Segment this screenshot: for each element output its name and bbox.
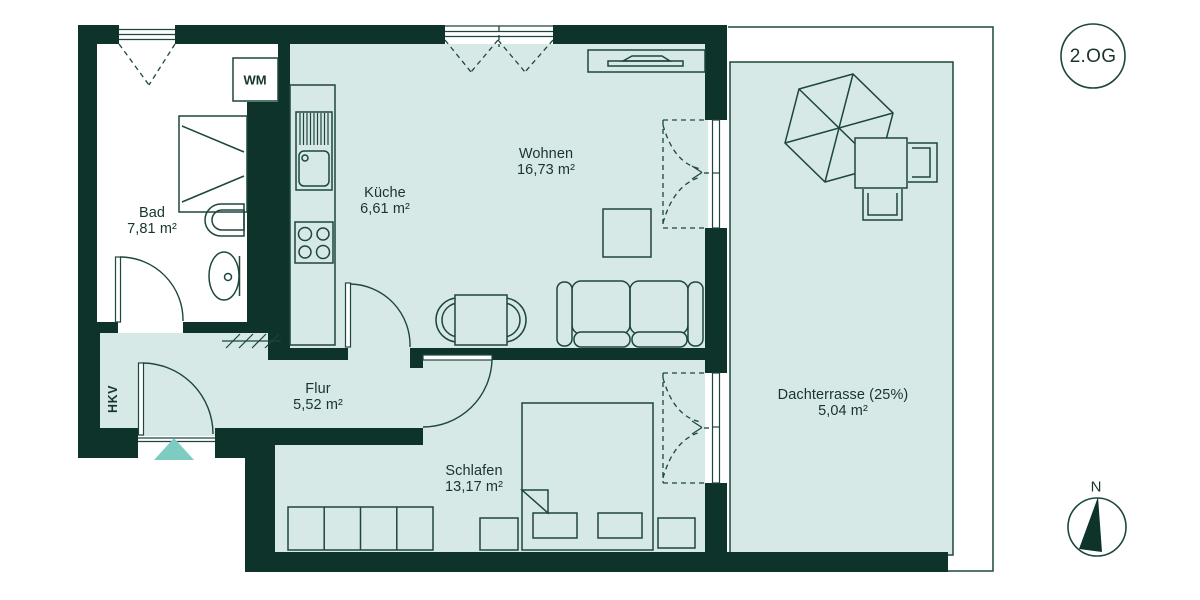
room-name: Flur — [305, 381, 330, 397]
compass-north-label: N — [1091, 479, 1102, 496]
room-label-wohnen: Wohnen 16,73 m² — [517, 146, 575, 178]
room-area: 7,81 m² — [127, 221, 177, 237]
room-area: 16,73 m² — [517, 162, 575, 178]
room-label-flur: Flur 5,52 m² — [293, 381, 343, 413]
room-name: Wohnen — [519, 146, 573, 162]
compass-icon — [1068, 497, 1126, 556]
room-area: 13,17 m² — [445, 479, 503, 495]
floorplan-page: Bad 7,81 m² Küche 6,61 m² Wohnen 16,73 m… — [0, 0, 1200, 600]
room-name: Bad — [139, 205, 165, 221]
room-label-dachterrasse: Dachterrasse (25%) 5,04 m² — [778, 387, 909, 419]
room-name: Küche — [364, 185, 406, 201]
room-name: Schlafen — [445, 463, 502, 479]
washing-machine-label: WM — [243, 73, 266, 88]
room-area: 6,61 m² — [360, 201, 410, 217]
floorplan-canvas — [0, 0, 1200, 600]
room-label-bad: Bad 7,81 m² — [127, 205, 177, 237]
room-name: Dachterrasse (25%) — [778, 387, 909, 403]
floor-badge: 2.OG — [1070, 46, 1117, 68]
utility-shaft-label: HKV — [106, 385, 120, 413]
room-area: 5,04 m² — [778, 403, 909, 419]
room-area: 5,52 m² — [293, 397, 343, 413]
terrace-floor — [730, 62, 953, 555]
room-label-schlafen: Schlafen 13,17 m² — [445, 463, 503, 495]
room-label-kueche: Küche 6,61 m² — [360, 185, 410, 217]
